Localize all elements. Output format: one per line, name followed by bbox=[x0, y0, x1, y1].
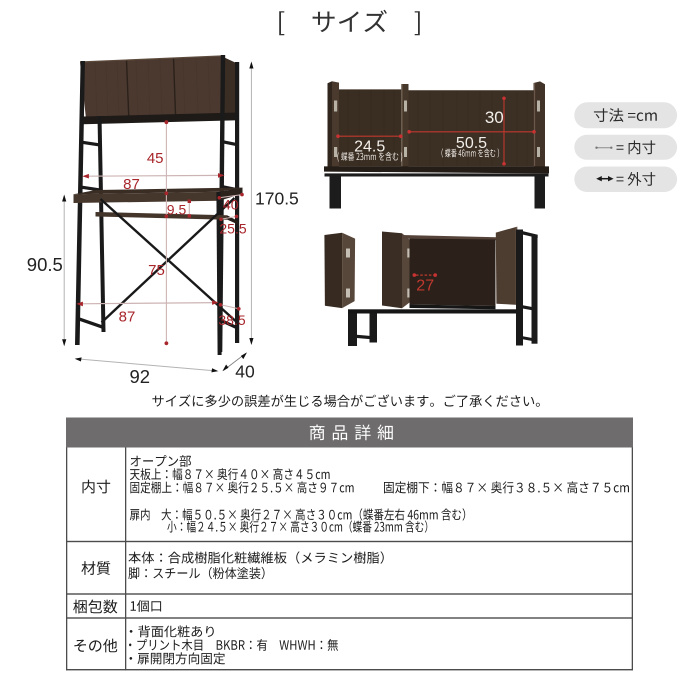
svg-text:87: 87 bbox=[119, 308, 136, 325]
svg-text:170.5: 170.5 bbox=[255, 189, 299, 209]
svg-text:25.5: 25.5 bbox=[219, 221, 246, 237]
svg-text:87: 87 bbox=[123, 176, 140, 193]
svg-text:45: 45 bbox=[147, 150, 164, 167]
svg-text:38.5: 38.5 bbox=[218, 312, 245, 328]
svg-text:30: 30 bbox=[485, 108, 504, 127]
svg-text:27: 27 bbox=[416, 277, 434, 294]
svg-text:92: 92 bbox=[130, 366, 151, 387]
svg-text:90.5: 90.5 bbox=[27, 254, 63, 275]
svg-text:9.5: 9.5 bbox=[167, 201, 187, 217]
svg-text:75: 75 bbox=[148, 262, 165, 279]
svg-text:50.5: 50.5 bbox=[456, 135, 487, 152]
svg-text:40: 40 bbox=[223, 197, 239, 213]
svg-text:24.5: 24.5 bbox=[354, 138, 385, 155]
svg-text:40: 40 bbox=[235, 362, 255, 382]
